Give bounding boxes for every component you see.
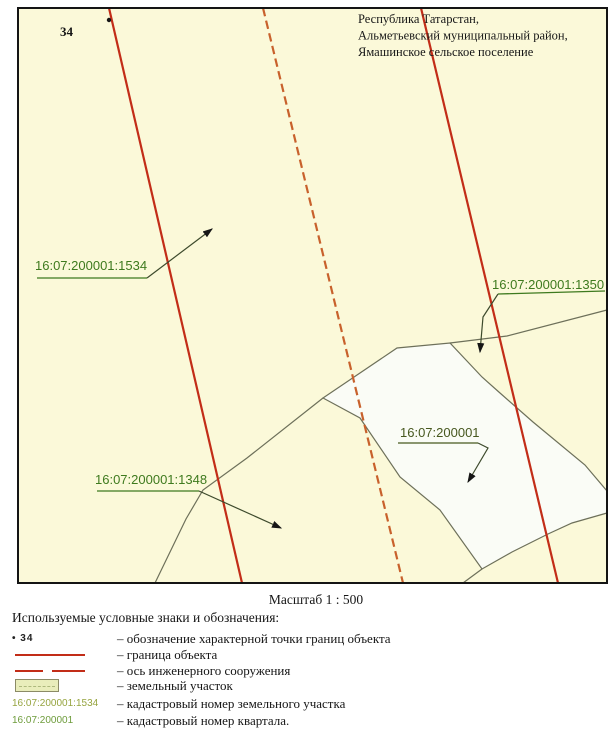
- cadastral-plan-page: 3416:07:200001:153416:07:200001:135016:0…: [0, 0, 616, 738]
- legend-description: – кадастровый номер земельного участка: [117, 696, 345, 712]
- dash-segment: [15, 670, 43, 672]
- cadastral-map: 3416:07:200001:153416:07:200001:135016:0…: [0, 0, 616, 590]
- quarter-number-sample: 16:07:200001: [12, 715, 73, 726]
- land-parcel-swatch: [15, 679, 59, 692]
- legend-row-land-parcel: – земельный участок: [12, 678, 610, 693]
- scale-label: Масштаб 1 : 500: [166, 592, 466, 608]
- map-region-title-line1: Республика Татарстан,: [358, 12, 479, 26]
- boundary-point-34-dot: [107, 18, 111, 22]
- cadastral-label-quarter: 16:07:200001: [400, 425, 480, 440]
- map-region-title-line3: Ямашинское сельское поселение: [358, 45, 534, 59]
- cadastral-label-parcel-1534: 16:07:200001:1534: [35, 258, 147, 273]
- legend: Используемые условные знаки и обозначени…: [12, 610, 610, 736]
- dash-segment: [52, 670, 85, 672]
- legend-symbol-cell: [12, 654, 117, 656]
- legend-description: – обозначение характерной точки границ о…: [117, 631, 391, 647]
- map-region-title-line2: Альметьевский муниципальный район,: [358, 29, 568, 43]
- legend-description: – граница объекта: [117, 647, 217, 663]
- legend-symbol-cell: [12, 670, 117, 672]
- legend-title: Используемые условные знаки и обозначени…: [12, 610, 610, 626]
- legend-symbol-cell: 16:07:200001:1534: [12, 698, 117, 709]
- boundary-point-34-label: 34: [60, 24, 74, 39]
- legend-row-object-boundary: – граница объекта: [12, 647, 610, 662]
- dashed-red-line-symbol: [15, 670, 85, 672]
- legend-row-parcel-number: 16:07:200001:1534 – кадастровый номер зе…: [12, 696, 610, 711]
- legend-symbol-cell: 16:07:200001: [12, 715, 117, 726]
- legend-row-engineering-axis: – ось инженерного сооружения: [12, 663, 610, 678]
- solid-red-line-symbol: [15, 654, 85, 656]
- legend-row-quarter-number: 16:07:200001 – кадастровый номер квартал…: [12, 713, 610, 728]
- cadastral-label-parcel-1348: 16:07:200001:1348: [95, 472, 207, 487]
- legend-symbol-cell: [12, 679, 117, 692]
- legend-description: – кадастровый номер квартала.: [117, 713, 289, 729]
- cadastral-label-parcel-1350: 16:07:200001:1350: [492, 277, 604, 292]
- legend-description: – ось инженерного сооружения: [117, 663, 290, 679]
- legend-symbol-cell: • 34: [12, 633, 117, 644]
- legend-description: – земельный участок: [117, 678, 233, 694]
- parcel-number-sample: 16:07:200001:1534: [12, 698, 98, 709]
- boundary-point-symbol: • 34: [12, 633, 33, 644]
- legend-row-boundary-point: • 34 – обозначение характерной точки гра…: [12, 631, 610, 646]
